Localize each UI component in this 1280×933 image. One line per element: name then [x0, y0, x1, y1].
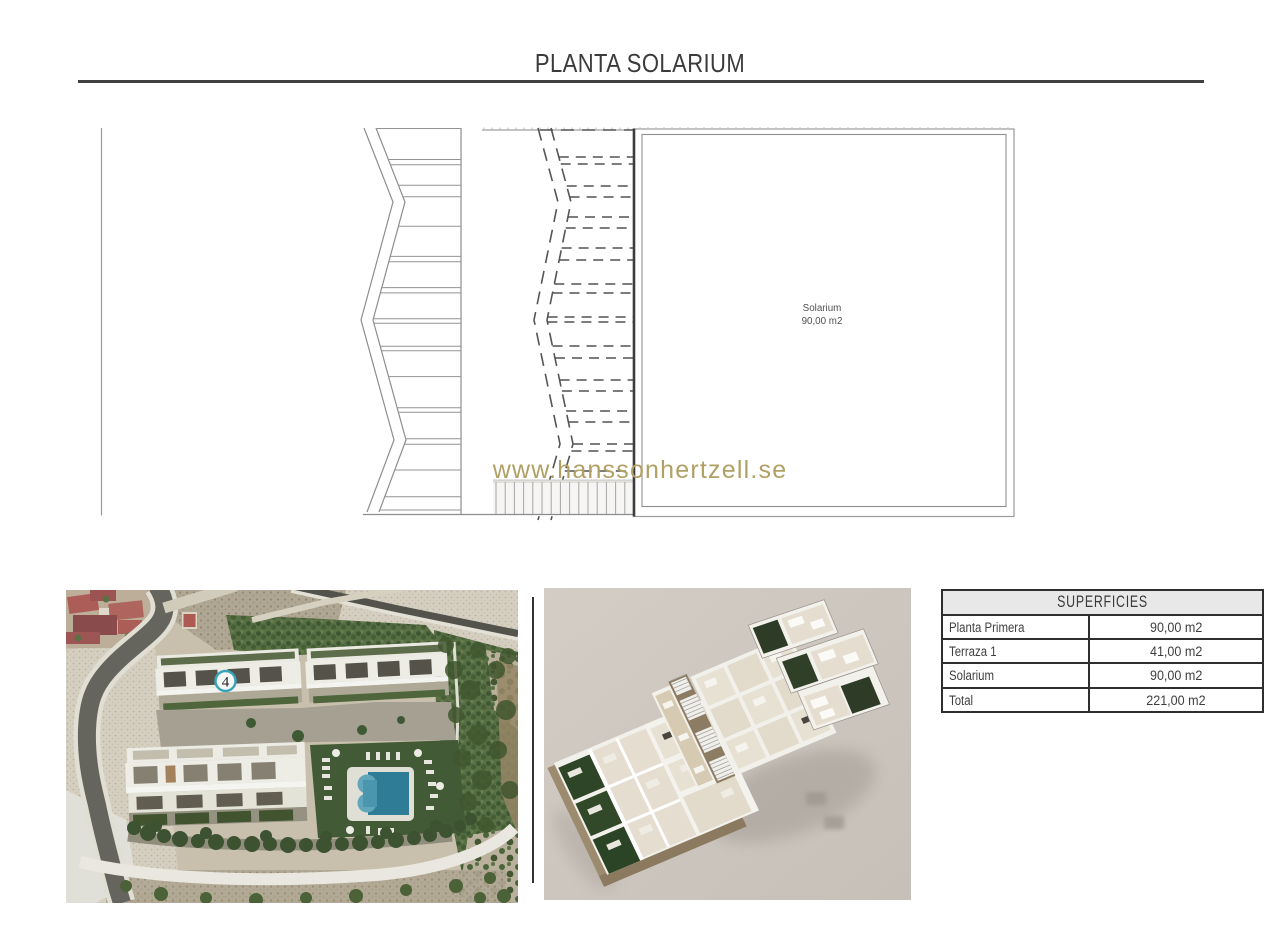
- svg-text:90,00 m2: 90,00 m2: [802, 316, 843, 327]
- svg-text:Solarium: Solarium: [803, 303, 842, 314]
